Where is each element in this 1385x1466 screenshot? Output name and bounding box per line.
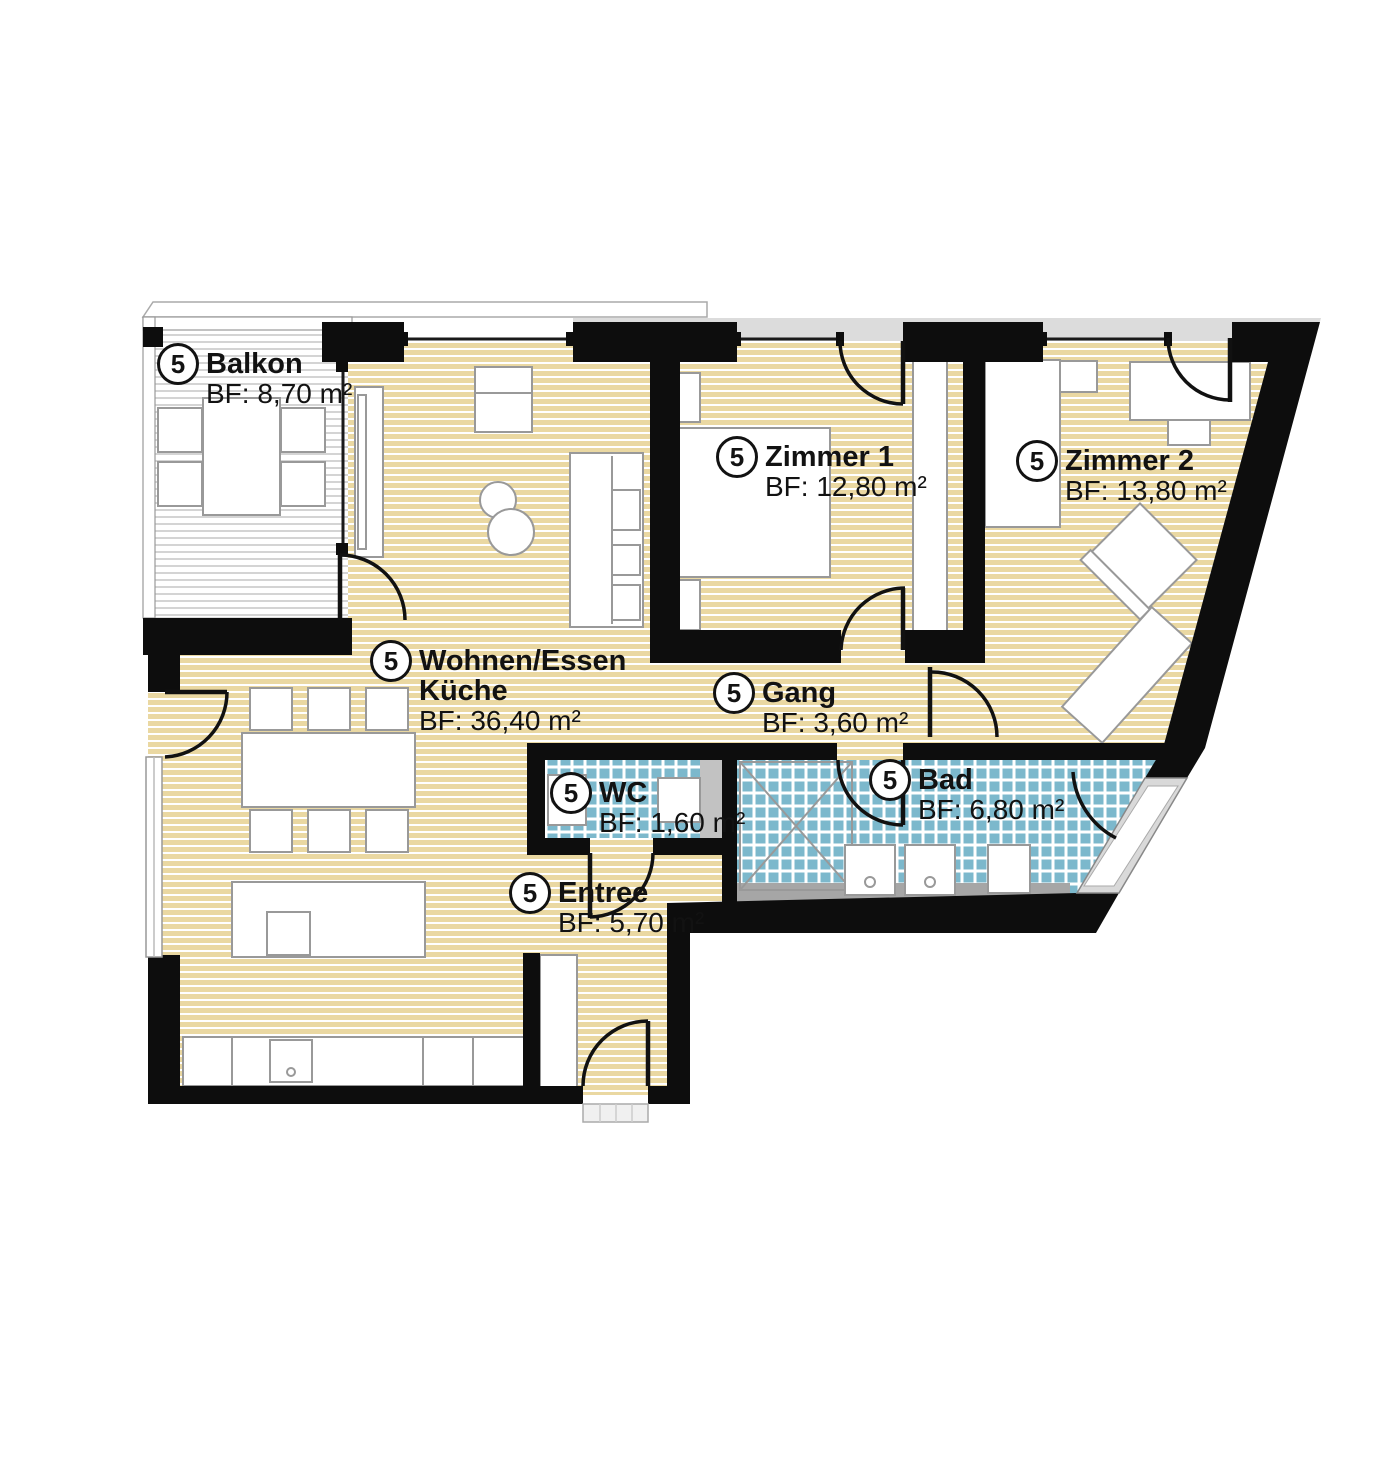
room-area: BF: 8,70 m² (206, 379, 352, 409)
armchair-seat (475, 393, 532, 432)
room-area: BF: 6,80 m² (918, 795, 1064, 825)
wall-room-divider (963, 362, 985, 646)
unit-number-badge: 5 (157, 343, 199, 385)
left-wall-window (146, 757, 162, 957)
room-name-line2: Küche (419, 676, 626, 706)
island-sink (267, 912, 310, 955)
unit-number-badge: 5 (716, 436, 758, 478)
label-zimmer1: 5 Zimmer 1 BF: 12,80 m² (716, 442, 927, 502)
label-zimmer2: 5 Zimmer 2 BF: 13,80 m² (1016, 446, 1227, 506)
wall-wc-bottom (653, 838, 722, 855)
room-name: Entree (558, 878, 704, 908)
label-entree: 5 Entree BF: 5,70 m² (509, 878, 704, 938)
unit-number-badge: 5 (370, 640, 412, 682)
wall-corridor-south (527, 743, 837, 760)
sideboard-front (358, 395, 366, 549)
wall-top (573, 322, 737, 362)
floor-plan: 5 Balkon BF: 8,70 m² 5 Wohnen/Essen Küch… (0, 0, 1385, 1466)
wall (143, 327, 163, 347)
label-wohnen: 5 Wohnen/Essen Küche BF: 36,40 m² (370, 646, 626, 736)
bath-toilet (988, 845, 1030, 893)
room-name: Gang (762, 678, 908, 708)
room-name: Balkon (206, 349, 352, 379)
label-balkon: 5 Balkon BF: 8,70 m² (157, 349, 352, 409)
wall-corridor-south (903, 743, 1170, 760)
dining-chair (250, 688, 292, 730)
unit-number-badge: 5 (509, 872, 551, 914)
room-area: BF: 5,70 m² (558, 908, 704, 938)
shelf-box (612, 545, 640, 575)
room-area: BF: 13,80 m² (1065, 476, 1227, 506)
wall-balcony-bottom (143, 618, 352, 655)
unit-number-badge: 5 (550, 772, 592, 814)
shelf (1060, 361, 1097, 392)
balcony-table (203, 398, 280, 515)
room-name: Bad (918, 765, 1064, 795)
wall-left (148, 955, 180, 1104)
dining-chair (308, 810, 350, 852)
kitchen-island (232, 882, 425, 957)
canopy-outline (143, 302, 707, 317)
unit-number-badge: 5 (713, 672, 755, 714)
wall-kitchen-stub (523, 953, 540, 1088)
balcony-chair (281, 462, 325, 506)
room-name: WC (599, 778, 745, 808)
dining-chair (308, 688, 350, 730)
wall-left (148, 655, 180, 692)
floor-plan-drawing (0, 0, 1385, 1466)
shelf-box (612, 490, 640, 530)
stove-knob (287, 1068, 295, 1076)
wall-top (903, 322, 1043, 362)
room-name: Wohnen/Essen (419, 646, 626, 676)
room-area: BF: 3,60 m² (762, 708, 908, 738)
wall-zimmer1-left (650, 362, 680, 630)
dining-chair (250, 810, 292, 852)
desk-chair (1168, 420, 1210, 445)
balcony-chair (158, 408, 202, 452)
room-area: BF: 36,40 m² (419, 706, 626, 736)
wall-wc-bottom (527, 838, 590, 855)
label-bad: 5 Bad BF: 6,80 m² (869, 765, 1064, 825)
unit-number-badge: 5 (869, 759, 911, 801)
shelf-box (612, 585, 640, 620)
room-name: Zimmer 1 (765, 442, 927, 472)
side-table (488, 509, 534, 555)
unit-number-badge: 5 (1016, 440, 1058, 482)
armchair-back (475, 367, 532, 393)
label-wc: 5 WC BF: 1,60 m² (550, 778, 745, 838)
balcony-chair (158, 462, 202, 506)
label-gang: 5 Gang BF: 3,60 m² (713, 678, 908, 738)
balcony-chair (281, 408, 325, 452)
room-area: BF: 12,80 m² (765, 472, 927, 502)
room-area: BF: 1,60 m² (599, 808, 745, 838)
entry-threshold (583, 1104, 648, 1122)
wall-bottom (148, 1086, 583, 1104)
wardrobe (913, 360, 947, 645)
dining-chair (366, 810, 408, 852)
wall-zimmer1-bottom (650, 630, 841, 663)
entree-wardrobe (540, 955, 577, 1088)
room-name: Zimmer 2 (1065, 446, 1227, 476)
dining-table (242, 733, 415, 807)
